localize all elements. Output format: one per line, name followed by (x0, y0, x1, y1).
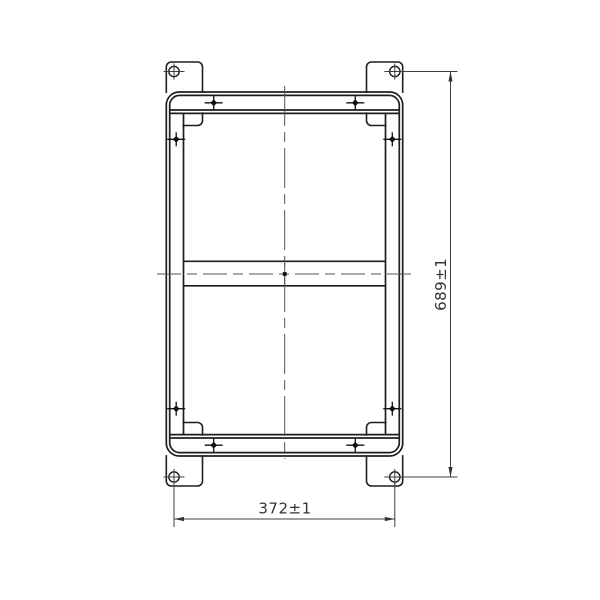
drawing-page: 689±1 372±1 (0, 0, 600, 600)
technical-drawing-canvas: 689±1 372±1 (0, 0, 600, 600)
height-dimension-label: 689±1 (432, 258, 450, 311)
width-dimension-label: 372±1 (258, 500, 311, 518)
